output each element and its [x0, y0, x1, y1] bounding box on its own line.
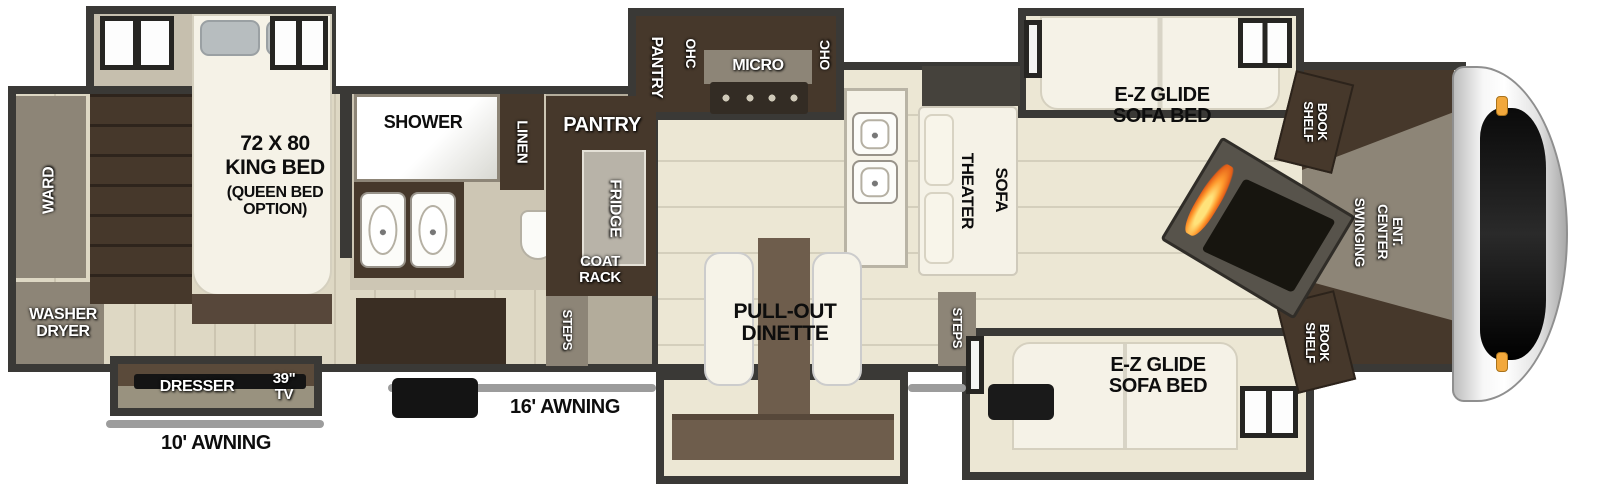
dresser-label: DRESSER [136, 376, 258, 398]
pull-out-dinette-label: PULL-OUT DINETTE [700, 298, 870, 348]
micro-label: MICRO [706, 54, 810, 78]
bed-foot-bench [192, 294, 332, 324]
shower [354, 94, 500, 182]
cooktop [710, 82, 808, 114]
shower-label: SHOWER [358, 110, 488, 134]
bookshelf-label-top: BOOK SHELF [1288, 80, 1342, 164]
entry-step [392, 378, 478, 418]
bookshelf-label-bottom: BOOK SHELF [1290, 300, 1344, 386]
bedroom-window-right [270, 16, 328, 70]
sink-basin [368, 205, 397, 255]
bath-sink [360, 192, 406, 268]
ward-label: WARD [18, 150, 82, 230]
wardrobe-cabinet [90, 94, 192, 304]
window [1238, 18, 1292, 68]
tv-label: 39" TV [256, 366, 312, 408]
swinging-label: SWINGING [1344, 150, 1376, 314]
sink-basin [418, 205, 447, 255]
steps-label-right: STEPS [938, 292, 976, 364]
theater-sofa-label-word2: SOFA [982, 130, 1020, 250]
awning-16ft-bar [908, 384, 966, 392]
dinette-bench [672, 414, 894, 460]
pillow [200, 20, 260, 56]
bath-sink [410, 192, 456, 268]
washer-dryer-label: WASHER DRYER [8, 300, 118, 348]
ez-glide-sofa-bed-label-top: E-Z GLIDE SOFA BED [1072, 82, 1252, 130]
pantry-slide-label: PANTRY [638, 22, 674, 112]
coat-rack-label: COAT RACK [548, 250, 652, 290]
ez-glide-sofa-bed-label-bottom: E-Z GLIDE SOFA BED [1068, 352, 1248, 400]
linen-label: LINEN [500, 98, 544, 186]
kitchen-sink [852, 160, 898, 204]
ohc-label-left: OHC [676, 22, 706, 84]
fridge-label: FRIDGE [584, 152, 644, 264]
front-cap-window [1480, 108, 1546, 360]
bedroom-window-left [100, 16, 174, 70]
steps-label-left: STEPS [548, 294, 586, 366]
closet-cabinet [356, 298, 506, 364]
king-bed-label: KING BED [200, 156, 350, 180]
king-bed-size-label: 72 X 80 [200, 132, 350, 156]
pantry-label: PANTRY [548, 112, 656, 138]
overhead-cabinet [922, 66, 1020, 106]
ohc-label-right: OHC [810, 22, 840, 88]
window [1024, 20, 1042, 78]
kitchen-sink [852, 112, 898, 156]
awning-16ft-label: 16' AWNING [470, 394, 660, 420]
sink-basin [860, 167, 889, 197]
awning-10ft-label: 10' AWNING [118, 430, 314, 456]
awning-10ft-bar [106, 420, 324, 428]
window [1240, 386, 1298, 438]
marker-light [1496, 96, 1508, 116]
theater-sofa-label-word1: THEATER [948, 118, 986, 264]
sink-basin [860, 119, 889, 149]
marker-light [1496, 352, 1508, 372]
floorplan-canvas: WARD WASHER DRYER 72 X 80 KING BED (QUEE… [0, 0, 1600, 490]
ent-center-label: ENT. CENTER [1374, 150, 1408, 314]
end-table [988, 384, 1054, 420]
queen-bed-option-label: (QUEEN BED OPTION) [200, 182, 350, 222]
